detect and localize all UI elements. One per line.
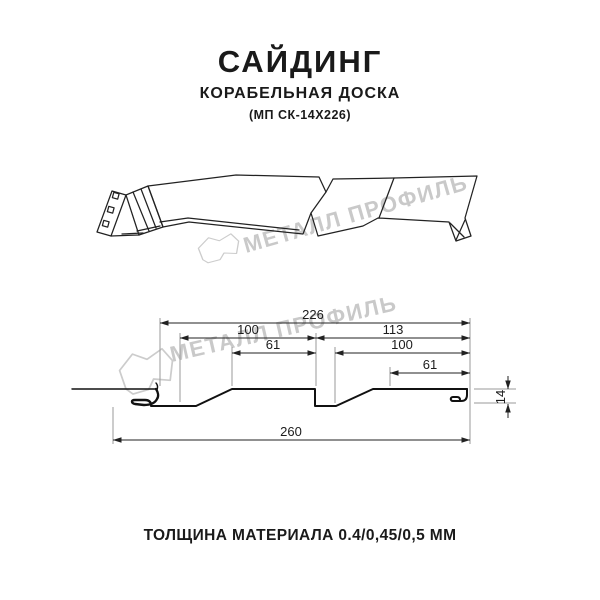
- technical-drawing: МЕТАЛЛ ПРОФИЛЬ: [0, 0, 600, 600]
- dim-overall-width-label: 226: [302, 307, 324, 322]
- dim-left-flat-label: 61: [266, 337, 280, 352]
- dim-total-width-label: 260: [280, 424, 302, 439]
- brand-house-icon: [117, 348, 176, 396]
- dim-height-label: 14: [493, 390, 508, 404]
- material-thickness-caption: ТОЛЩИНА МАТЕРИАЛА 0.4/0,45/0,5 ММ: [0, 527, 600, 545]
- catalog-sheet: САЙДИНГ КОРАБЕЛЬНАЯ ДОСКА (МП СК-14Х226)…: [0, 0, 600, 600]
- profile-right-edge: [451, 389, 467, 401]
- profile-outline: [151, 389, 467, 406]
- dim-right-board-label: 100: [391, 337, 413, 352]
- brand-watermark-text: МЕТАЛЛ ПРОФИЛЬ: [240, 170, 470, 258]
- dim-left-board-label: 100: [237, 322, 259, 337]
- brand-house-icon: [197, 233, 241, 264]
- lock-hook-detail: [132, 389, 158, 405]
- nail-strip: [97, 191, 126, 236]
- dim-right-section-label: 113: [383, 322, 404, 337]
- brand-watermark-top: МЕТАЛЛ ПРОФИЛЬ: [197, 170, 471, 264]
- brand-watermark-text: МЕТАЛЛ ПРОФИЛЬ: [168, 290, 400, 367]
- dim-right-flat-label: 61: [423, 357, 437, 372]
